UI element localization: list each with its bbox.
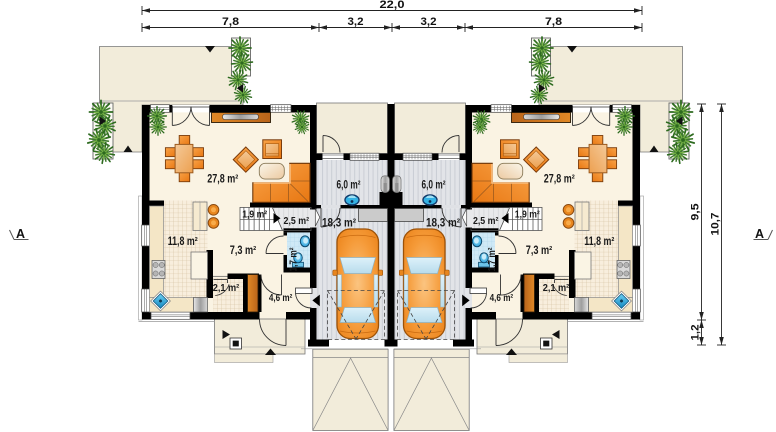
svg-text:1,7 m²: 1,7 m² [486, 247, 498, 271]
svg-text:3,2: 3,2 [348, 16, 364, 28]
svg-text:11,8 m²: 11,8 m² [168, 236, 198, 248]
svg-text:7,3 m²: 7,3 m² [526, 245, 553, 257]
svg-text:A: A [755, 227, 764, 241]
svg-text:7,8: 7,8 [545, 16, 562, 28]
svg-text:2,1 m²: 2,1 m² [543, 282, 570, 294]
svg-text:27,8 m²: 27,8 m² [544, 174, 575, 186]
svg-text:4,6 m²: 4,6 m² [269, 292, 293, 304]
svg-text:A: A [16, 227, 25, 241]
svg-text:18,3 m²: 18,3 m² [322, 218, 356, 230]
svg-text:4,6 m²: 4,6 m² [490, 292, 514, 304]
svg-text:1,9 m²: 1,9 m² [515, 209, 540, 221]
svg-text:1,2: 1,2 [690, 325, 702, 341]
svg-text:9,5: 9,5 [690, 204, 702, 221]
svg-text:2,5 m²: 2,5 m² [284, 215, 310, 227]
svg-text:2,5 m²: 2,5 m² [473, 215, 499, 227]
svg-text:6,0 m²: 6,0 m² [337, 180, 361, 192]
svg-text:18,3 m²: 18,3 m² [426, 218, 460, 230]
svg-text:3,2: 3,2 [421, 16, 437, 28]
svg-text:27,8 m²: 27,8 m² [207, 174, 238, 186]
svg-text:1,7 m²: 1,7 m² [288, 247, 300, 271]
svg-text:7,3 m²: 7,3 m² [230, 245, 257, 257]
svg-text:22,0: 22,0 [380, 0, 405, 11]
svg-text:11,8 m²: 11,8 m² [584, 236, 614, 248]
svg-text:10,7: 10,7 [710, 213, 722, 236]
svg-text:7,8: 7,8 [222, 16, 239, 28]
svg-text:6,0 m²: 6,0 m² [422, 180, 446, 192]
svg-text:2,1 m²: 2,1 m² [213, 282, 240, 294]
svg-text:1,9 m²: 1,9 m² [242, 209, 267, 221]
